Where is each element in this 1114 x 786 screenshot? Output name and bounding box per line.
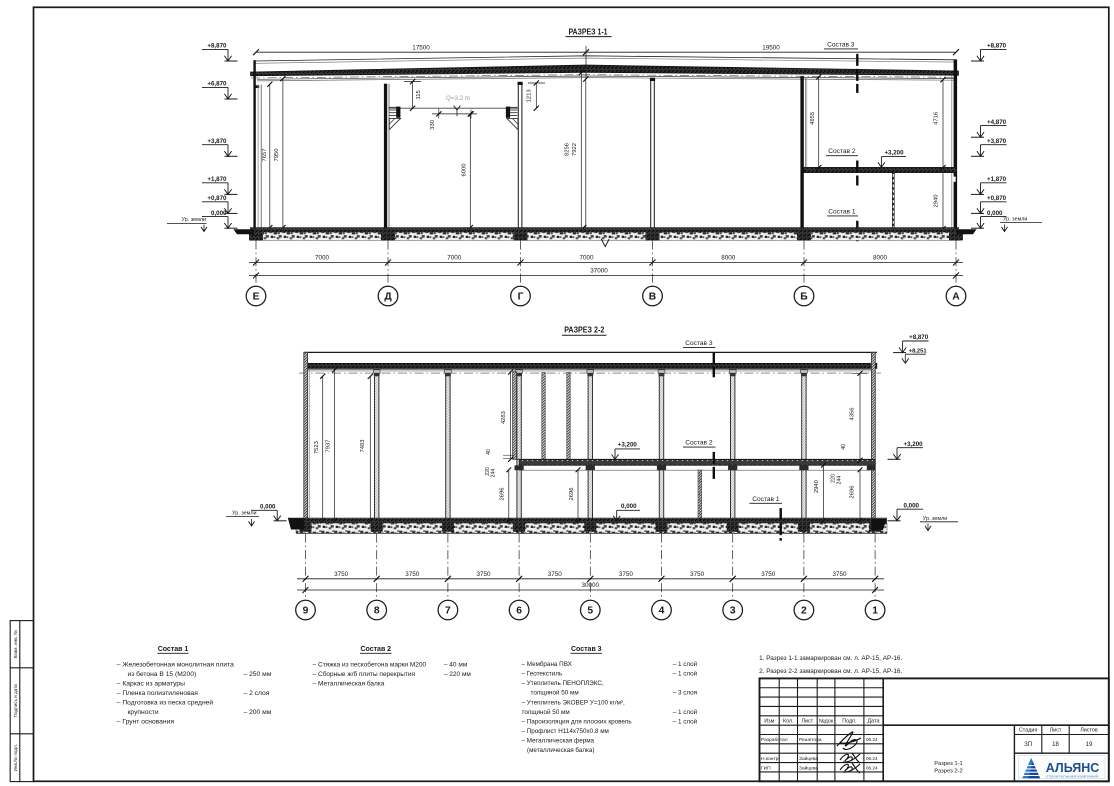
- svg-text:19: 19: [1086, 742, 1093, 748]
- svg-text:– Подготовка из песка средней: – Подготовка из песка средней: [117, 699, 214, 707]
- svg-text:– Грунт основания: – Грунт основания: [117, 719, 175, 726]
- svg-text:– 1 слой: – 1 слой: [673, 717, 698, 725]
- svg-text:7000: 7000: [447, 255, 462, 262]
- svg-text:– 1 слой: – 1 слой: [673, 708, 698, 716]
- svg-text:Состав 1: Состав 1: [752, 496, 780, 503]
- svg-text:Состав 3: Состав 3: [685, 340, 713, 347]
- svg-text:– 1 слой: – 1 слой: [673, 670, 698, 678]
- svg-text:(металлическая балка): (металлическая балка): [527, 746, 595, 754]
- svg-text:18: 18: [1052, 742, 1059, 748]
- svg-text:6000: 6000: [461, 164, 467, 177]
- svg-text:0,000: 0,000: [621, 503, 637, 510]
- svg-text:8000: 8000: [721, 255, 736, 262]
- svg-text:Взам. инв. №: Взам. инв. №: [13, 630, 18, 659]
- svg-text:0,000: 0,000: [211, 210, 227, 217]
- svg-text:– Железобетонная монолитная п: – Железобетонная монолитная плита: [117, 660, 234, 668]
- svg-text:2: 2: [801, 605, 807, 616]
- svg-text:40: 40: [841, 444, 847, 450]
- svg-text:– 220 мм: – 220 мм: [444, 671, 472, 678]
- svg-text:+1,870: +1,870: [987, 176, 1007, 183]
- svg-text:+0,870: +0,870: [207, 195, 227, 202]
- svg-text:Состав 3: Состав 3: [571, 646, 602, 653]
- svg-text:+8,870: +8,870: [987, 43, 1007, 50]
- svg-text:1. Разрез 1-1 замаркирован см.: 1. Разрез 1-1 замаркирован см. л. АР-15,…: [759, 655, 902, 662]
- svg-text:4: 4: [659, 605, 665, 616]
- svg-text:Лист: Лист: [1050, 728, 1062, 734]
- svg-text:3750: 3750: [476, 571, 491, 578]
- svg-text:– 2 слоя: – 2 слоя: [244, 690, 270, 697]
- svg-text:Состав 2: Состав 2: [685, 440, 713, 447]
- svg-text:Г: Г: [518, 291, 524, 302]
- svg-text:2696: 2696: [500, 488, 506, 501]
- svg-text:№док: №док: [819, 718, 834, 724]
- svg-text:8: 8: [374, 605, 380, 616]
- svg-text:Изм: Изм: [764, 718, 774, 724]
- svg-text:Инв.№ подл.: Инв.№ подл.: [13, 744, 18, 771]
- svg-text:115: 115: [416, 90, 422, 99]
- svg-text:строительная компания: строительная компания: [1046, 775, 1099, 779]
- svg-text:– Стяжка из пескобетона марки: – Стяжка из пескобетона марки М200: [313, 660, 427, 668]
- svg-text:Зайцева: Зайцева: [799, 755, 818, 762]
- svg-text:7483: 7483: [360, 440, 366, 453]
- svg-text:6: 6: [516, 605, 522, 616]
- svg-text:Состав 3: Состав 3: [827, 41, 855, 48]
- svg-text:Состав 2: Состав 2: [360, 646, 391, 653]
- svg-text:Состав 1: Состав 1: [828, 208, 856, 215]
- svg-text:из бетона В 15 (М200): из бетона В 15 (М200): [128, 670, 197, 678]
- svg-text:1213: 1213: [527, 89, 533, 102]
- svg-text:3750: 3750: [619, 571, 634, 578]
- svg-text:Листов: Листов: [1080, 728, 1098, 734]
- svg-text:7937: 7937: [325, 440, 331, 453]
- svg-text:– Профлист Н114х750х0.8 мм: – Профлист Н114х750х0.8 мм: [522, 728, 609, 735]
- svg-text:толщиной 50 мм: толщиной 50 мм: [522, 708, 570, 716]
- svg-text:– 40 мм: – 40 мм: [444, 661, 468, 668]
- svg-text:7: 7: [445, 605, 451, 616]
- svg-text:Д: Д: [384, 291, 392, 302]
- svg-text:Лист: Лист: [801, 718, 813, 724]
- svg-text:– Каркас из арматуры: – Каркас из арматуры: [117, 681, 185, 688]
- svg-text:1: 1: [872, 605, 878, 616]
- svg-text:Подпись и дата: Подпись и дата: [13, 684, 18, 717]
- svg-text:2. Разрез 2-2 замаркирован см.: 2. Разрез 2-2 замаркирован см. л. АР-15,…: [759, 668, 902, 675]
- svg-text:+6,870: +6,870: [207, 81, 227, 88]
- svg-text:Разрез 1-1: Разрез 1-1: [934, 761, 962, 767]
- svg-text:7657: 7657: [262, 149, 268, 162]
- svg-text:8256: 8256: [565, 143, 571, 156]
- svg-text:Дата: Дата: [868, 718, 880, 724]
- svg-text:– 3 слоя: – 3 слоя: [673, 690, 697, 697]
- svg-text:Е: Е: [253, 291, 260, 302]
- svg-text:Ур. земли: Ур. земли: [1003, 217, 1027, 223]
- svg-text:– Мембрана ПВХ: – Мембрана ПВХ: [522, 660, 573, 668]
- svg-text:40: 40: [486, 449, 492, 455]
- svg-text:3750: 3750: [334, 571, 349, 578]
- svg-text:2940: 2940: [933, 195, 939, 208]
- svg-text:4356: 4356: [850, 408, 856, 421]
- svg-text:Разрез 2-2: Разрез 2-2: [934, 769, 962, 775]
- svg-text:3: 3: [730, 605, 736, 616]
- svg-text:5: 5: [587, 605, 593, 616]
- svg-text:Н.контр.: Н.контр.: [761, 756, 780, 762]
- svg-text:Б: Б: [800, 291, 808, 302]
- svg-text:330: 330: [430, 120, 436, 130]
- svg-text:06.24: 06.24: [866, 765, 878, 770]
- svg-text:06.24: 06.24: [866, 737, 878, 742]
- svg-text:37000: 37000: [590, 268, 608, 275]
- svg-text:+8,870: +8,870: [207, 43, 227, 50]
- svg-text:+3,200: +3,200: [884, 149, 904, 156]
- svg-text:Состав 2: Состав 2: [828, 148, 856, 155]
- svg-text:244: 244: [837, 476, 843, 485]
- svg-text:В: В: [649, 291, 656, 302]
- svg-text:+3,870: +3,870: [207, 138, 227, 145]
- svg-text:4283: 4283: [501, 411, 507, 424]
- svg-text:4716: 4716: [933, 112, 939, 125]
- svg-text:толщиной 50 мм: толщиной 50 мм: [531, 689, 579, 697]
- svg-text:РАЗРЕЗ 2-2: РАЗРЕЗ 2-2: [564, 325, 604, 335]
- svg-text:Ур. земли: Ур. земли: [923, 516, 947, 522]
- svg-text:+1,870: +1,870: [207, 176, 227, 183]
- svg-text:+4,870: +4,870: [987, 119, 1007, 126]
- svg-text:244: 244: [490, 469, 496, 478]
- svg-text:ЗП: ЗП: [1024, 742, 1032, 748]
- svg-text:7922: 7922: [572, 143, 578, 156]
- svg-text:7950: 7950: [274, 149, 280, 162]
- svg-text:0,000: 0,000: [260, 504, 276, 511]
- svg-text:7000: 7000: [315, 255, 330, 262]
- svg-text:220: 220: [830, 474, 836, 483]
- svg-text:+0,870: +0,870: [987, 195, 1007, 202]
- svg-text:19500: 19500: [762, 44, 780, 51]
- svg-text:– Сборные ж/б плиты перекрытия: – Сборные ж/б плиты перекрытия: [313, 670, 416, 678]
- svg-text:– Металлическая балка: – Металлическая балка: [313, 680, 385, 688]
- svg-text:Ур. земли: Ур. земли: [232, 511, 256, 517]
- svg-text:3750: 3750: [405, 571, 420, 578]
- svg-text:8000: 8000: [873, 255, 888, 262]
- svg-text:+3,200: +3,200: [904, 441, 924, 448]
- svg-text:Ур. земли: Ур. земли: [182, 217, 206, 223]
- svg-text:Кол.: Кол.: [783, 718, 794, 724]
- svg-text:– 200 мм: – 200 мм: [244, 709, 272, 716]
- svg-text:– Пленка полиэтиленовая: – Пленка полиэтиленовая: [117, 690, 198, 697]
- svg-text:2696: 2696: [850, 486, 856, 499]
- svg-text:ГИП: ГИП: [761, 765, 771, 771]
- svg-text:А: А: [952, 291, 960, 302]
- svg-text:– Металлическая ферма: – Металлическая ферма: [522, 738, 595, 745]
- svg-text:Подп.: Подп.: [842, 718, 856, 724]
- svg-text:– 250 мм: – 250 мм: [244, 671, 272, 678]
- svg-text:30000: 30000: [582, 582, 600, 589]
- svg-text:+8,870: +8,870: [909, 334, 929, 341]
- svg-text:3750: 3750: [832, 571, 847, 578]
- svg-text:0,000: 0,000: [904, 502, 920, 509]
- svg-text:Разработал: Разработал: [761, 737, 788, 743]
- svg-text:крупности: крупности: [128, 709, 159, 716]
- svg-text:7523: 7523: [314, 441, 320, 454]
- svg-text:Зайцева: Зайцева: [799, 764, 818, 771]
- svg-text:– Утеплитель ЭКОВЕР У=100 кг/м: – Утеплитель ЭКОВЕР У=100 кг/м²,: [522, 699, 626, 706]
- svg-text:– Пароизоляция для плоских кро: – Пароизоляция для плоских кровель: [522, 718, 633, 725]
- svg-text:0,000: 0,000: [987, 210, 1003, 217]
- svg-text:– Утеплитель ПЕНОПЛЭКС,: – Утеплитель ПЕНОПЛЭКС,: [522, 680, 604, 687]
- svg-text:Стадия: Стадия: [1019, 728, 1037, 734]
- svg-text:+8,251: +8,251: [909, 348, 928, 354]
- svg-text:7000: 7000: [579, 255, 594, 262]
- svg-text:4855: 4855: [810, 112, 816, 125]
- svg-text:+3,870: +3,870: [987, 138, 1007, 145]
- svg-text:Q=3.2 m: Q=3.2 m: [446, 95, 470, 102]
- svg-text:17500: 17500: [412, 44, 430, 51]
- svg-text:2940: 2940: [814, 480, 820, 493]
- svg-text:9: 9: [303, 605, 309, 616]
- svg-text:3750: 3750: [690, 571, 705, 578]
- svg-text:Состав 1: Состав 1: [158, 646, 189, 653]
- svg-text:2696: 2696: [569, 488, 575, 501]
- svg-text:АЛЬЯНС: АЛЬЯНС: [1046, 761, 1100, 775]
- svg-text:– Геотекстиль: – Геотекстиль: [522, 671, 563, 678]
- svg-text:Решетова: Решетова: [799, 737, 822, 743]
- svg-text:РАЗРЕЗ 1-1: РАЗРЕЗ 1-1: [569, 26, 608, 36]
- svg-text:06.24: 06.24: [866, 756, 878, 761]
- svg-text:– 1 слой: – 1 слой: [673, 660, 698, 668]
- svg-text:3750: 3750: [548, 571, 563, 578]
- svg-text:+3,200: +3,200: [618, 442, 638, 449]
- svg-text:3750: 3750: [761, 571, 776, 578]
